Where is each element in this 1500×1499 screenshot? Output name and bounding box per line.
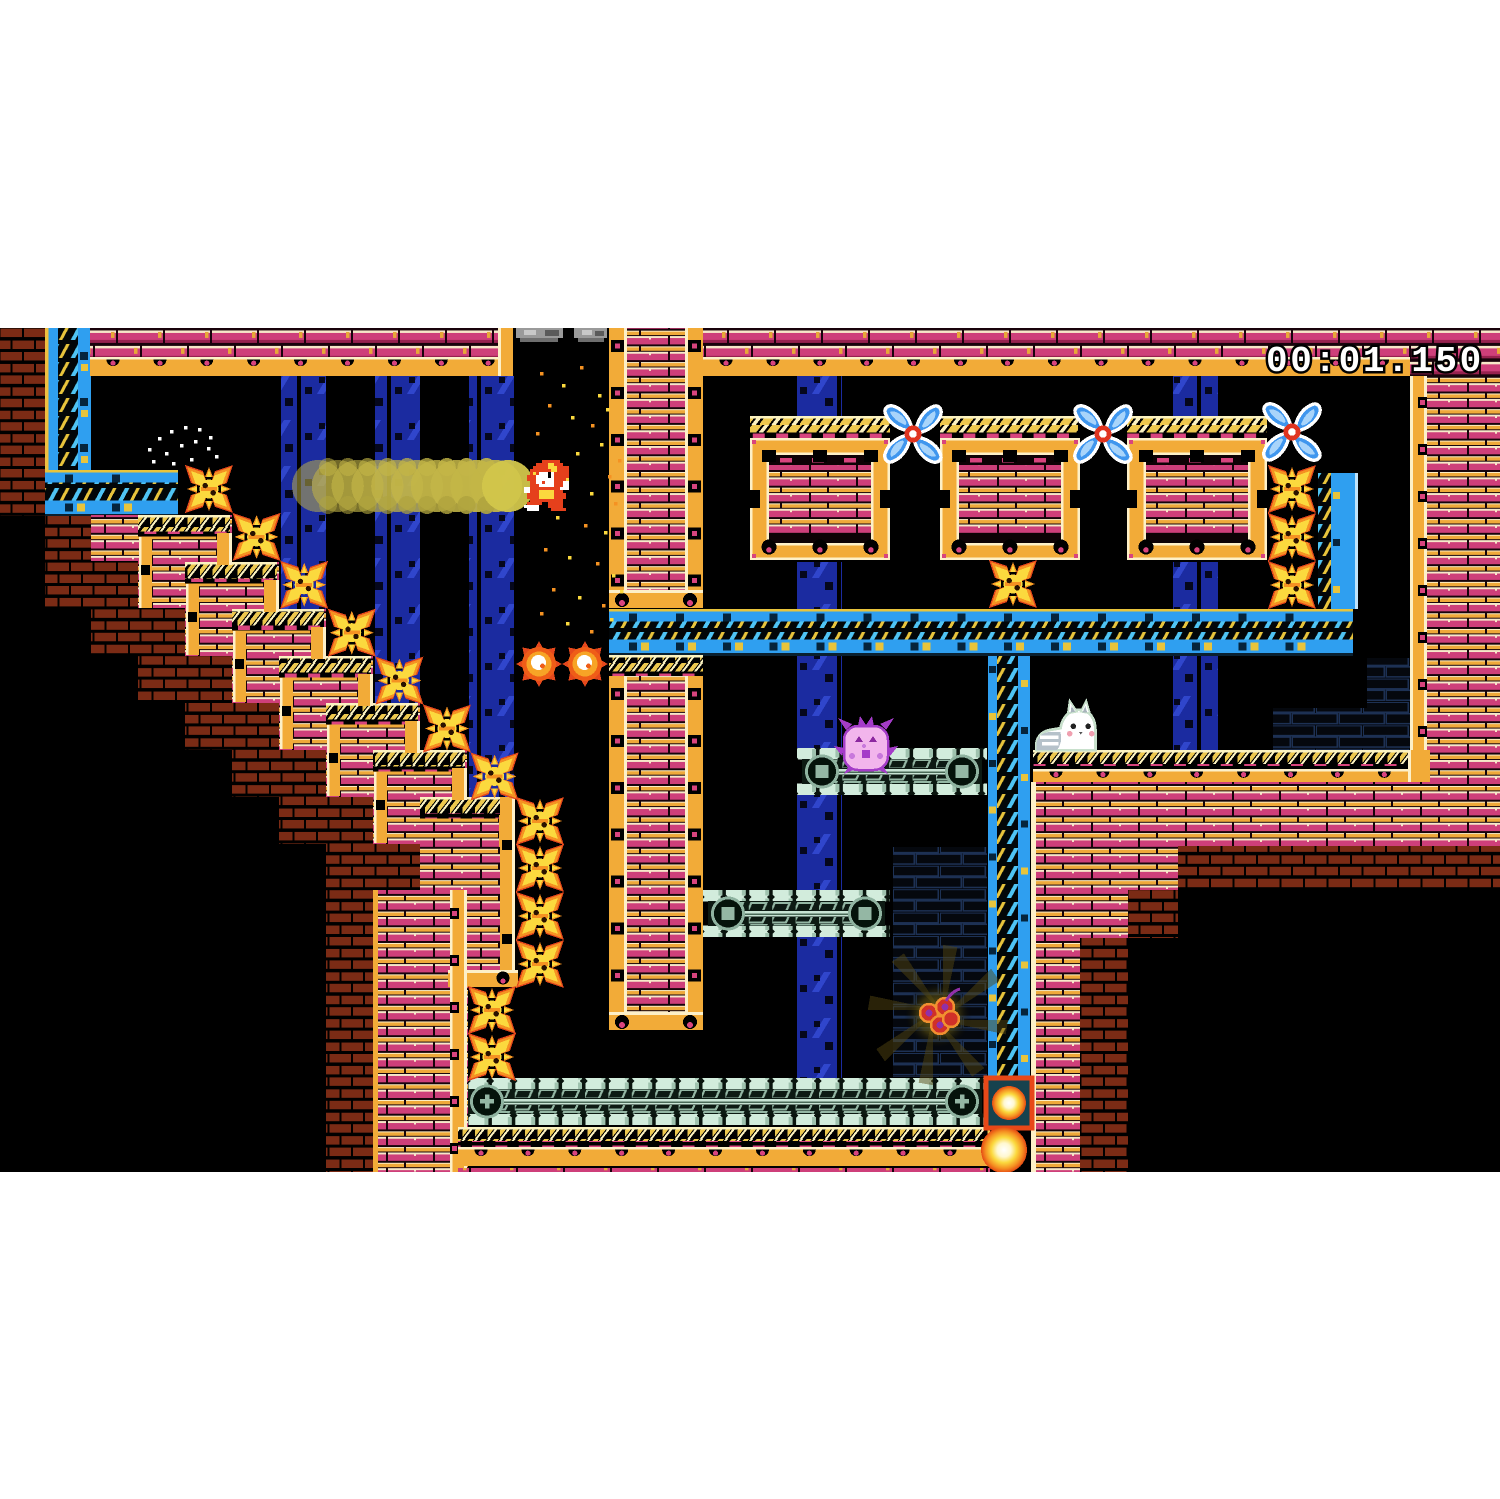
svg-text:00:01.150: 00:01.150 [1266,341,1484,382]
